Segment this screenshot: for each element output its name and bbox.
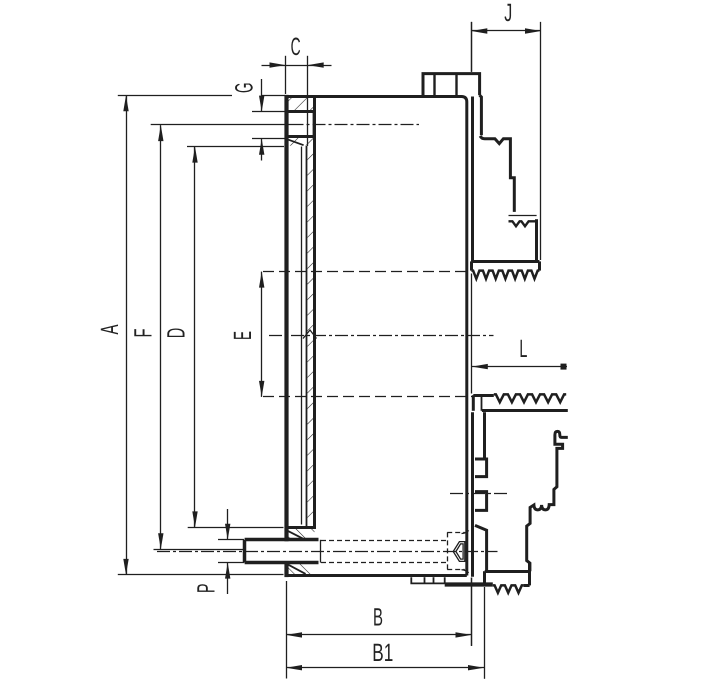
svg-text:F: F [130,329,158,338]
svg-text:B: B [373,604,383,632]
svg-text:G: G [230,83,258,94]
svg-text:P: P [192,583,220,593]
svg-text:D: D [163,328,191,339]
svg-text:J: J [504,0,512,27]
svg-text:B1: B1 [372,639,393,667]
svg-text:E: E [229,331,257,340]
svg-text:C: C [291,33,301,61]
svg-text:L: L [519,335,527,363]
svg-text:A: A [96,324,124,334]
